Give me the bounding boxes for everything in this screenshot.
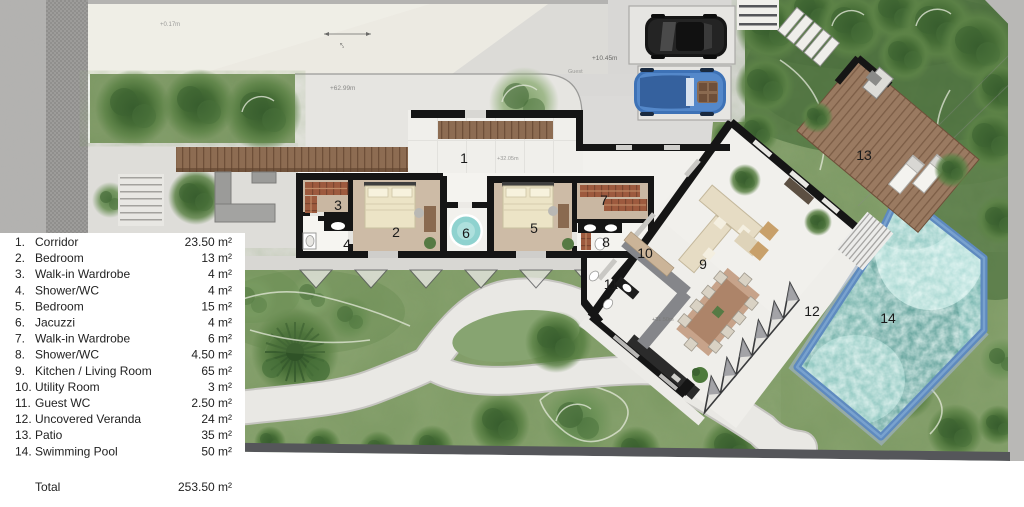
svg-text:+10.45m: +10.45m <box>592 55 617 62</box>
svg-text:253.50 m²: 253.50 m² <box>178 480 232 494</box>
svg-text:6 m²: 6 m² <box>208 332 232 346</box>
svg-text:65 m²: 65 m² <box>201 364 232 378</box>
svg-text:Corridor: Corridor <box>35 235 78 249</box>
svg-text:4.: 4. <box>15 283 25 297</box>
svg-text:2.50 m²: 2.50 m² <box>191 396 232 410</box>
svg-text:4: 4 <box>343 236 351 252</box>
svg-text:1: 1 <box>460 150 468 166</box>
svg-text:Swimming Pool: Swimming Pool <box>35 444 118 458</box>
svg-text:Guest: Guest <box>568 69 583 75</box>
svg-text:2.: 2. <box>15 251 25 265</box>
svg-text:1.: 1. <box>15 235 25 249</box>
svg-text:5: 5 <box>530 220 538 236</box>
svg-text:11: 11 <box>604 276 619 292</box>
svg-text:7: 7 <box>600 192 608 208</box>
svg-text:Patio: Patio <box>35 428 63 442</box>
svg-text:24 m²: 24 m² <box>201 412 232 426</box>
svg-text:23.50 m²: 23.50 m² <box>185 235 232 249</box>
svg-text:Bedroom: Bedroom <box>35 251 84 265</box>
svg-text:Shower/WC: Shower/WC <box>35 348 99 362</box>
svg-text:9.: 9. <box>15 364 25 378</box>
svg-text:3: 3 <box>334 197 342 213</box>
svg-text:Jacuzzi: Jacuzzi <box>35 316 75 330</box>
svg-text:5.: 5. <box>15 299 25 313</box>
svg-text:9: 9 <box>699 256 707 272</box>
svg-text:11.: 11. <box>15 396 31 410</box>
svg-text:35 m²: 35 m² <box>201 428 232 442</box>
svg-text:8: 8 <box>602 234 610 250</box>
svg-text:Bedroom: Bedroom <box>35 299 84 313</box>
svg-text:2: 2 <box>392 224 400 240</box>
svg-text:13: 13 <box>856 147 872 163</box>
svg-text:4 m²: 4 m² <box>208 316 232 330</box>
svg-text:3 m²: 3 m² <box>208 380 232 394</box>
svg-text:4 m²: 4 m² <box>208 267 232 281</box>
svg-text:14: 14 <box>880 310 896 326</box>
svg-text:Kitchen / Living Room: Kitchen / Living Room <box>35 364 152 378</box>
svg-text:⤣: ⤣ <box>340 43 344 50</box>
svg-text:7.: 7. <box>15 332 25 346</box>
svg-text:3.: 3. <box>15 267 25 281</box>
svg-text:+31.50m: +31.50m <box>652 317 674 323</box>
svg-text:4.50 m²: 4.50 m² <box>191 348 232 362</box>
svg-text:+62.99m: +62.99m <box>330 85 355 92</box>
svg-text:4 m²: 4 m² <box>208 283 232 297</box>
svg-text:12.: 12. <box>15 412 32 426</box>
svg-text:Walk-in Wardrobe: Walk-in Wardrobe <box>35 332 130 346</box>
svg-text:Guest WC: Guest WC <box>35 396 91 410</box>
svg-text:15 m²: 15 m² <box>201 299 232 313</box>
svg-text:+32.05m: +32.05m <box>497 156 519 162</box>
svg-text:8.: 8. <box>15 348 25 362</box>
svg-text:13 m²: 13 m² <box>201 251 232 265</box>
svg-text:12: 12 <box>804 303 820 319</box>
svg-text:Utility Room: Utility Room <box>35 380 100 394</box>
svg-text:50 m²: 50 m² <box>201 444 232 458</box>
svg-text:10.: 10. <box>15 380 32 394</box>
svg-text:10: 10 <box>637 245 653 261</box>
svg-text:6: 6 <box>462 225 470 241</box>
svg-text:13.: 13. <box>15 428 32 442</box>
svg-text:+0.17m: +0.17m <box>160 22 180 28</box>
svg-text:Total: Total <box>35 480 60 494</box>
svg-text:Walk-in Wardrobe: Walk-in Wardrobe <box>35 267 130 281</box>
svg-text:14.: 14. <box>15 444 32 458</box>
svg-text:Shower/WC: Shower/WC <box>35 283 99 297</box>
svg-text:Uncovered Veranda: Uncovered Veranda <box>35 412 141 426</box>
svg-text:6.: 6. <box>15 316 25 330</box>
